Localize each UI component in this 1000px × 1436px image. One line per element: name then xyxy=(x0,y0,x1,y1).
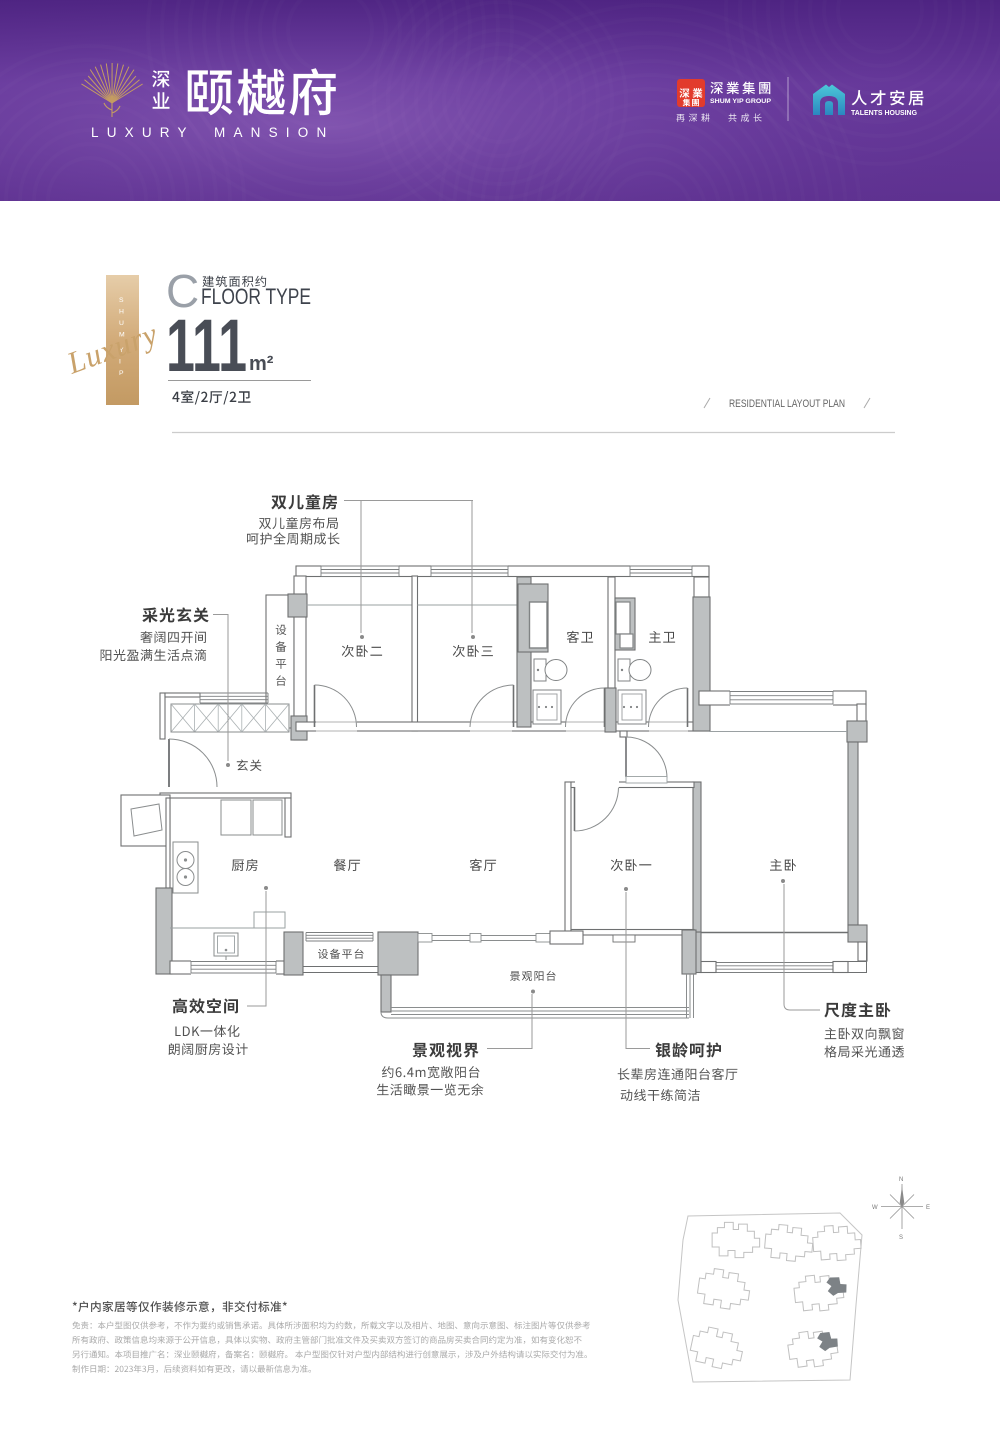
svg-text:LUXURY: LUXURY xyxy=(91,125,195,140)
svg-text:E: E xyxy=(926,1205,930,1211)
svg-text:W: W xyxy=(872,1205,878,1211)
svg-text:TALENTS HOUSING: TALENTS HOUSING xyxy=(851,108,917,117)
svg-text:RESIDENTIAL LAYOUT PLAN: RESIDENTIAL LAYOUT PLAN xyxy=(729,398,845,410)
svg-text:MANSION: MANSION xyxy=(214,125,334,140)
svg-text:H: H xyxy=(119,309,124,316)
svg-text:P: P xyxy=(119,370,124,377)
svg-text:S: S xyxy=(899,1235,903,1241)
svg-text:SHUM YIP GROUP: SHUM YIP GROUP xyxy=(710,98,771,105)
svg-text:S: S xyxy=(119,297,124,304)
svg-text:111: 111 xyxy=(166,304,247,387)
svg-text:m²: m² xyxy=(249,353,274,375)
svg-text:N: N xyxy=(899,1177,903,1183)
